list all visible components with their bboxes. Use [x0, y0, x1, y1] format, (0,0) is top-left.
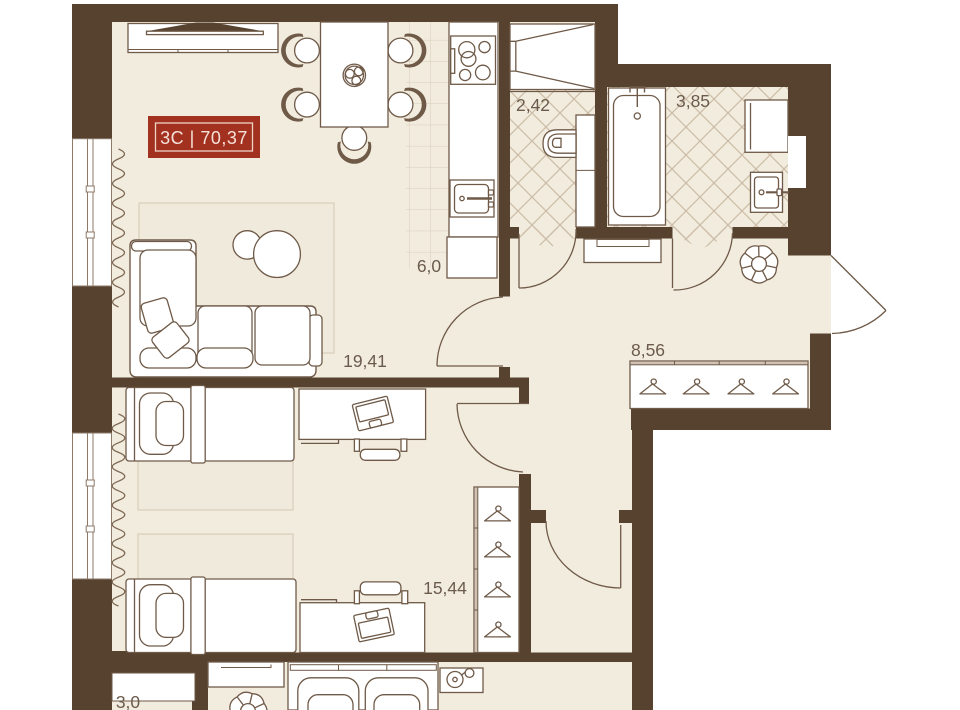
svg-text:3,85: 3,85	[676, 91, 710, 111]
svg-text:8,56: 8,56	[631, 340, 665, 360]
svg-text:2,42: 2,42	[516, 95, 550, 115]
svg-text:3,0: 3,0	[116, 692, 141, 710]
svg-text:6,0: 6,0	[417, 256, 442, 276]
svg-text:15,44: 15,44	[423, 578, 467, 598]
svg-text:3С | 70,37: 3С | 70,37	[160, 128, 248, 148]
svg-text:19,41: 19,41	[343, 351, 387, 371]
